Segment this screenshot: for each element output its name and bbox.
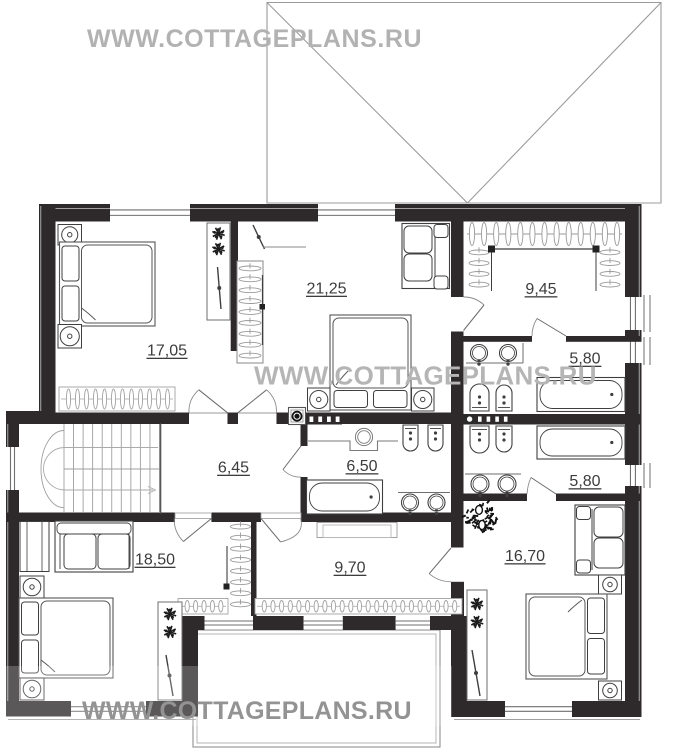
- svg-text:17,05: 17,05: [147, 343, 187, 360]
- svg-text:9,70: 9,70: [334, 560, 365, 577]
- svg-text:21,25: 21,25: [306, 281, 346, 298]
- svg-text:18,50: 18,50: [135, 552, 175, 569]
- svg-text:WWW.COTTAGEPLANS.RU: WWW.COTTAGEPLANS.RU: [82, 697, 412, 725]
- svg-text:WWW.COTTAGEPLANS.RU: WWW.COTTAGEPLANS.RU: [254, 361, 597, 391]
- svg-text:5,80: 5,80: [569, 473, 600, 490]
- svg-text:6,45: 6,45: [218, 460, 249, 477]
- svg-text:6,50: 6,50: [346, 458, 377, 475]
- svg-text:WWW.COTTAGEPLANS.RU: WWW.COTTAGEPLANS.RU: [87, 25, 422, 53]
- svg-text:9,45: 9,45: [525, 281, 556, 298]
- svg-text:16,70: 16,70: [505, 548, 545, 565]
